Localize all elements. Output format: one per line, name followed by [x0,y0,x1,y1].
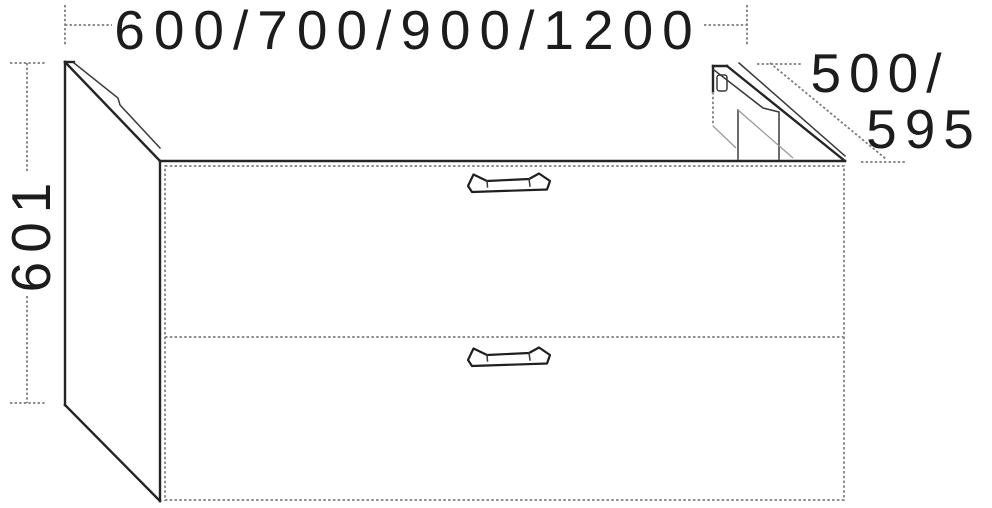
cabinet-diagram-svg: 600/700/900/1200 601 500/ 595 [0,0,992,508]
height-dimension: 601 [0,63,62,403]
rear-mounting-hole [717,75,727,91]
technical-drawing: 600/700/900/1200 601 500/ 595 [0,0,992,508]
cutout-shadow-line-2 [738,110,793,158]
handle-top-right-foot-edge [529,179,530,186]
height-dimension-label: 601 [0,174,62,293]
depth-dimension-label-line2: 595 [866,98,982,160]
width-dimension-label: 600/700/900/1200 [114,0,702,61]
cutout-shadow-line-1 [713,126,736,148]
left-bottom-edge [65,405,160,501]
drawer-fronts [165,166,844,500]
handle-top-left-foot-edge [487,181,488,187]
left-top-inner-edge [74,63,160,148]
width-dimension: 600/700/900/1200 [65,0,747,61]
handle-bottom-left-foot-edge [487,355,488,361]
depth-dimension: 500/ 595 [757,42,982,162]
cabinet-body [65,62,845,501]
drawer-handle-top [468,174,550,193]
drawer-front-outline [165,166,844,500]
handle-bar-top [468,174,550,193]
cutout-profile [714,70,779,159]
handle-bar-bottom [468,348,550,367]
handle-bottom-right-foot-edge [529,353,530,360]
drawer-handle-bottom [468,348,550,367]
rear-cutout [713,70,793,159]
left-top-edge [65,62,160,161]
depth-dimension-label-line1: 500/ [810,42,949,104]
